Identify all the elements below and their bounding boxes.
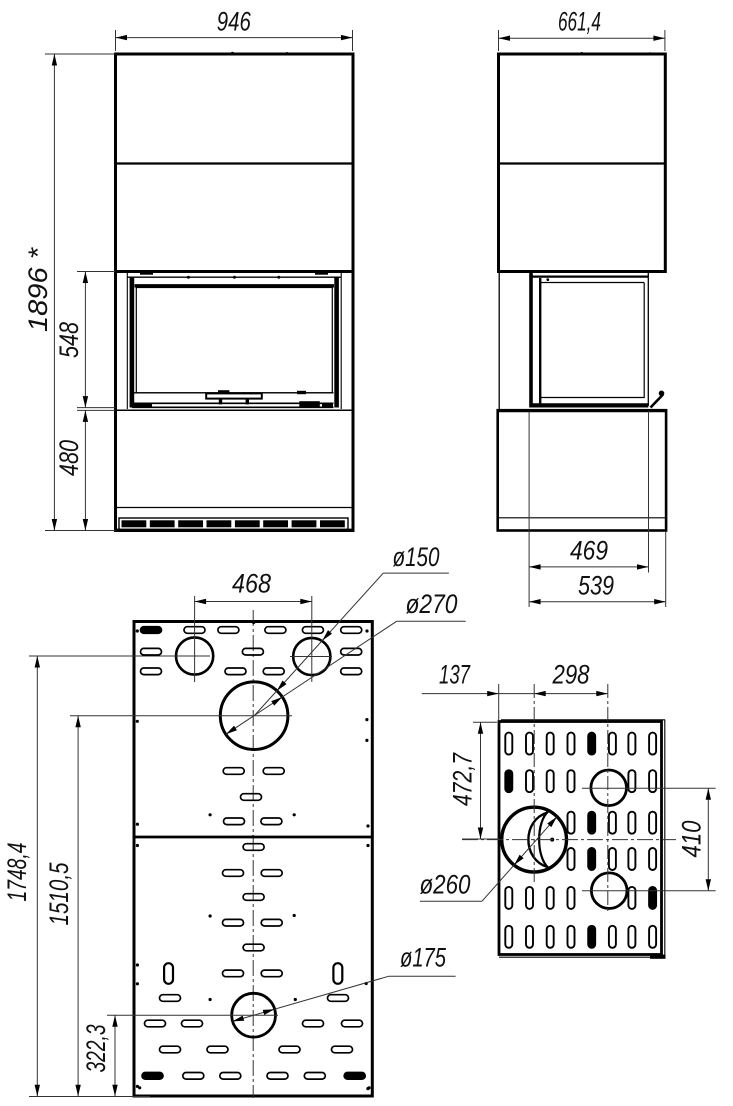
svg-text:661,4: 661,4 [558, 7, 601, 37]
svg-text:946: 946 [217, 6, 252, 36]
svg-text:ø175: ø175 [400, 943, 447, 973]
svg-text:480: 480 [54, 440, 84, 476]
svg-text:ø270: ø270 [406, 589, 458, 619]
svg-text:548: 548 [54, 322, 84, 358]
svg-text:298: 298 [552, 660, 590, 690]
svg-text:539: 539 [578, 571, 614, 601]
svg-text:137: 137 [439, 660, 471, 690]
svg-text:1896 *: 1896 * [23, 246, 53, 332]
svg-text:ø150: ø150 [393, 542, 440, 572]
svg-text:1748,4: 1748,4 [2, 843, 32, 902]
svg-text:469: 469 [570, 536, 608, 566]
svg-text:468: 468 [232, 569, 271, 599]
svg-text:410: 410 [677, 821, 707, 858]
svg-text:1510,5: 1510,5 [44, 862, 74, 926]
svg-text:322,3: 322,3 [81, 1025, 111, 1073]
svg-text:472,7: 472,7 [448, 752, 478, 806]
svg-text:ø260: ø260 [420, 870, 471, 900]
